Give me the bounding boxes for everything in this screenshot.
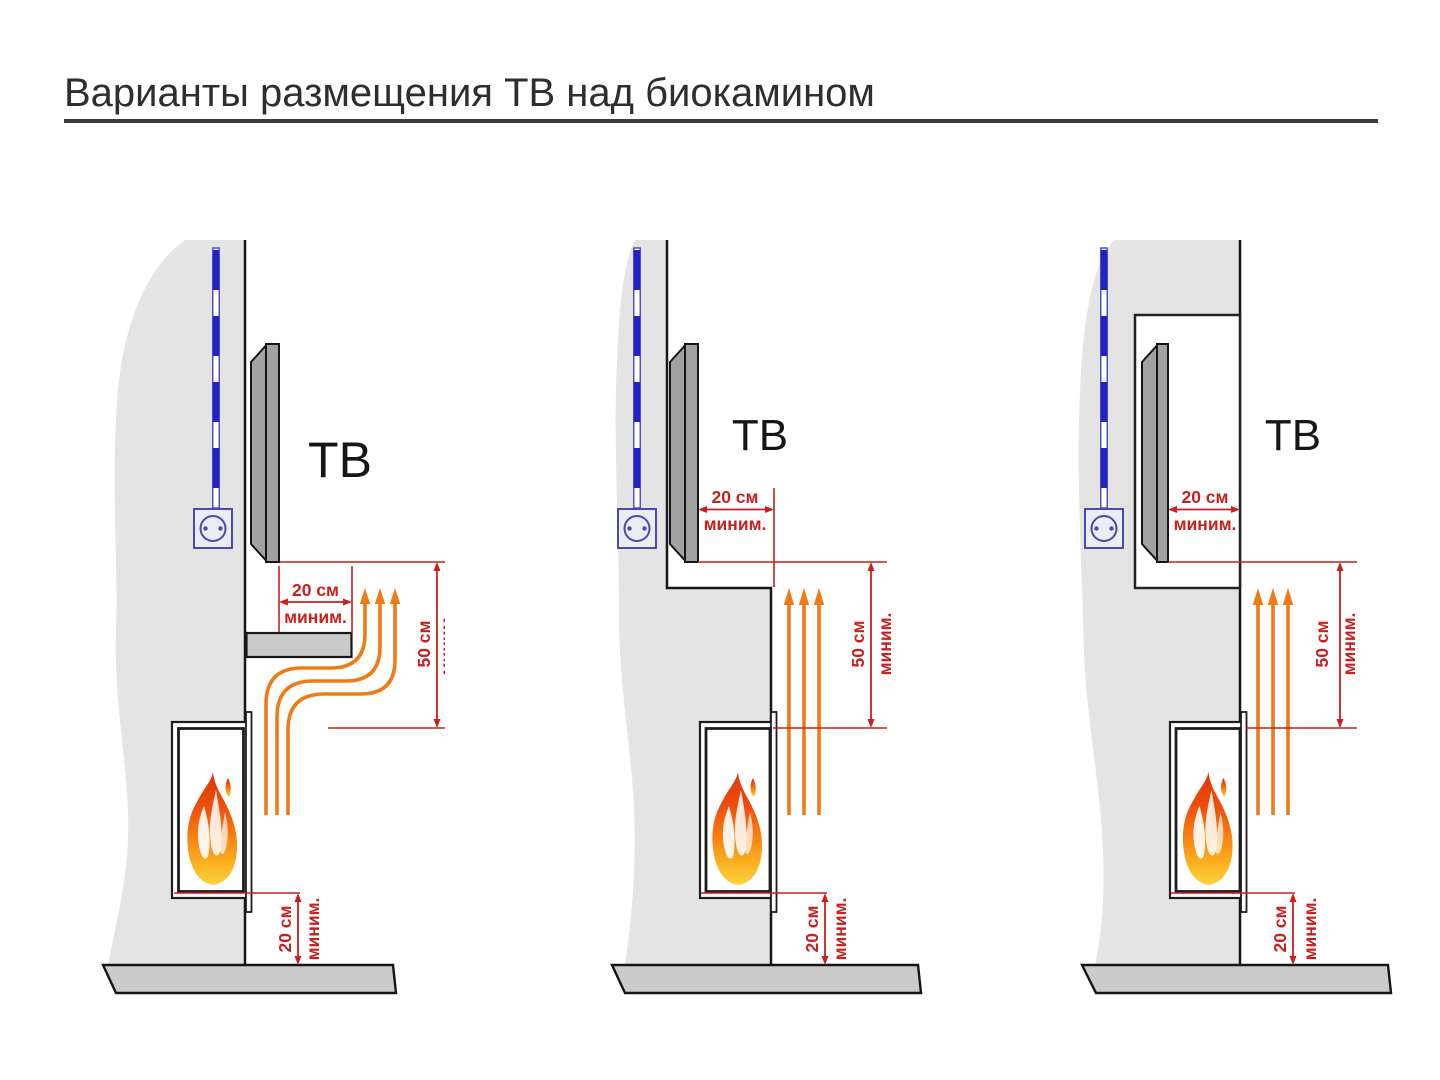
power-outlet-icon [194,509,232,548]
fireplace [1170,712,1247,912]
dim-qualifier: миним. [437,613,445,676]
dim-value: 20 см [275,905,295,952]
tv-label: ТВ [1265,411,1321,460]
dim-qualifier: миним. [875,613,895,676]
bio-fireplace-tv-placement-page: Варианты размещения ТВ над биокамином [0,0,1440,1080]
power-outlet-icon [618,509,656,548]
floor [103,965,396,993]
dim-value: 50 см [848,620,868,667]
tv-label: ТВ [308,432,372,488]
tv-side-profile [251,344,279,562]
tv-side-profile [1142,344,1168,562]
fireplace-glass [246,712,252,912]
diagram-variant-1: ТВ 20 см миним. [100,232,445,1007]
power-outlet-icon [1085,509,1123,548]
protective-shelf [247,633,352,657]
dim-qualifier: миним. [1300,898,1320,961]
dim-qualifier: миним. [830,898,850,961]
heat-flow-arrows [784,588,824,815]
diagram-variant-3: ТВ 20 см миним. [1060,232,1405,1007]
power-cable-icon [1101,248,1107,508]
dim-value: 20 см [1270,905,1290,952]
floor [1082,965,1391,993]
dim-value: 20 см [1181,487,1228,507]
power-cable-icon [634,248,640,508]
fireplace [700,712,777,912]
diagram-variant-2: ТВ 20 см миним. [595,232,940,1007]
title-underline [64,119,1378,123]
dim-qualifier: миним. [704,514,767,534]
fireplace-glass [771,712,777,912]
page-title: Варианты размещения ТВ над биокамином [64,72,1384,114]
fireplace-glass [1241,712,1247,912]
dim-value: 20 см [292,580,339,600]
dim-value: 20 см [711,487,758,507]
power-cable-icon [213,248,219,508]
dim-qualifier: миним. [1339,613,1359,676]
floor [612,965,921,993]
dim-qualifier: миним. [284,607,347,627]
dim-value: 20 см [802,905,822,952]
dim-value: 50 см [1312,620,1332,667]
heat-flow-arrows [1253,588,1293,815]
dim-qualifier: миним. [303,898,323,961]
tv-side-profile [670,344,698,562]
dim-qualifier: миним. [1174,514,1237,534]
fireplace [172,712,252,912]
tv-label: ТВ [732,411,788,460]
dimension-tv-front-gap: 20 см миним. [698,487,774,587]
dim-value: 50 см [414,620,434,667]
